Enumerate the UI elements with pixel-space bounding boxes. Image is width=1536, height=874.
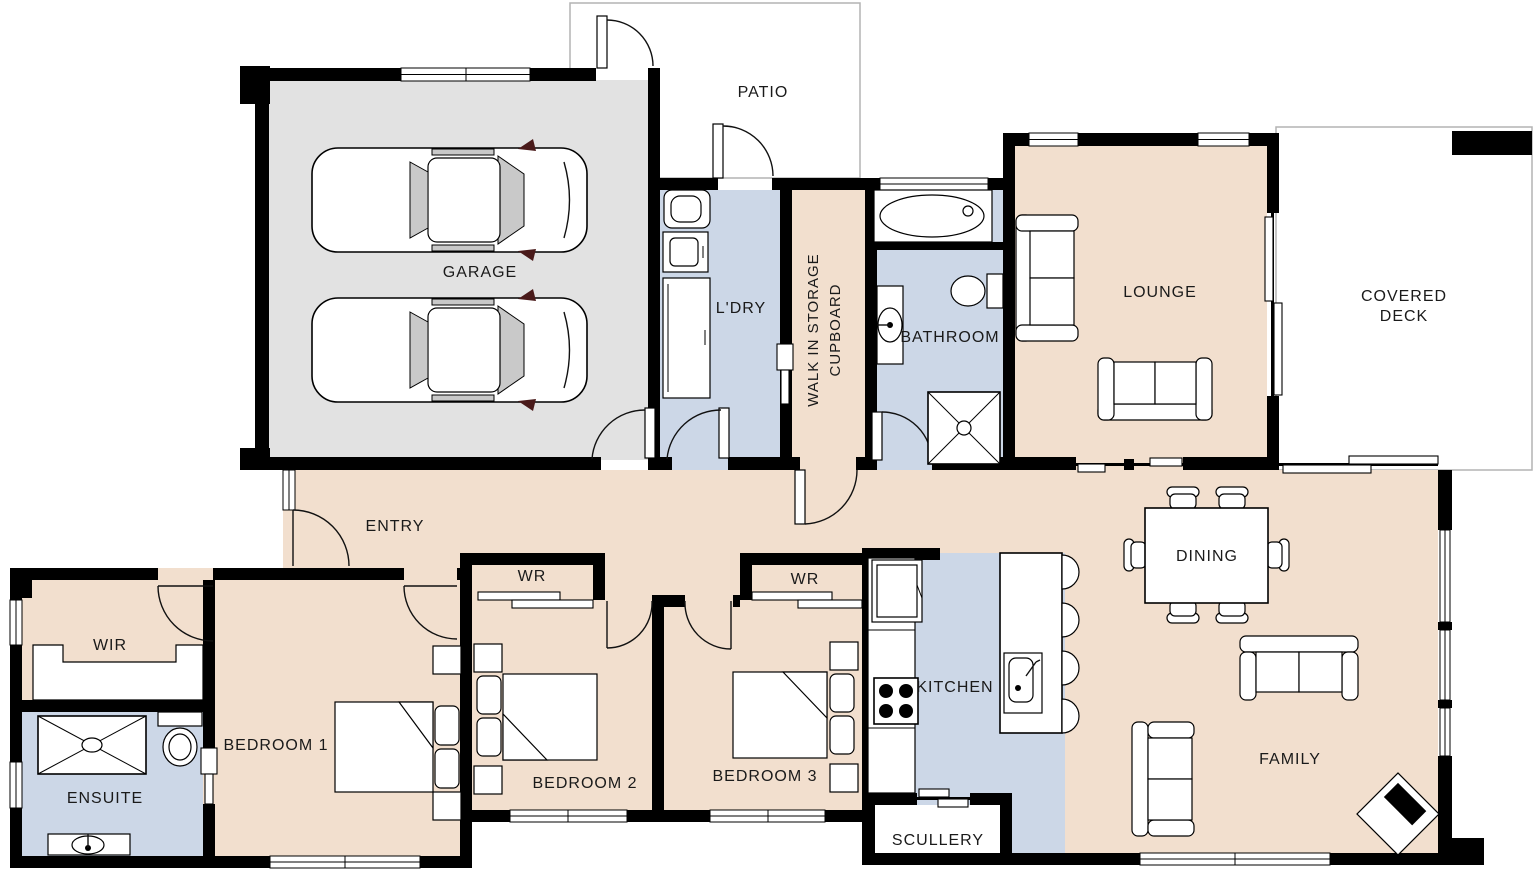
scullery-label: SCULLERY — [892, 832, 984, 849]
sofa-icon — [1132, 722, 1194, 836]
bedroom3-label: BEDROOM 3 — [712, 768, 817, 785]
bedroom1-label: BEDROOM 1 — [223, 737, 328, 754]
wir-label: WIR — [93, 637, 127, 654]
storage-cupboard-label-line1: WALK IN STORAGE — [805, 253, 822, 406]
nightstand-icon — [474, 766, 502, 794]
wr3-slider — [752, 592, 832, 600]
nightstand-icon — [830, 764, 858, 792]
ensuite-label: ENSUITE — [67, 790, 143, 807]
cooktop-icon — [874, 678, 918, 724]
floor-plan: GARAGE PATIO L'DRY WALK IN STORAGE CUPBO… — [0, 0, 1536, 874]
lounge-label: LOUNGE — [1123, 284, 1197, 301]
nightstand-icon — [474, 644, 502, 672]
laundry-appliances — [663, 190, 710, 398]
car-icon — [312, 139, 587, 261]
laundry-cabinet-icon — [663, 278, 710, 398]
sofa-icon — [1240, 636, 1358, 700]
exterior-notch-left — [0, 470, 283, 568]
dining-label: DINING — [1176, 548, 1238, 565]
nightstand-icon — [433, 646, 461, 674]
storage-cupboard-label-line2: CUPBOARD — [827, 283, 844, 376]
garage-label: GARAGE — [443, 264, 517, 281]
family-label: FAMILY — [1259, 751, 1321, 768]
sofa-icon — [1016, 215, 1078, 341]
wr2-label: WR — [518, 568, 547, 585]
floor-plan-canvas: GARAGE PATIO L'DRY WALK IN STORAGE CUPBO… — [0, 0, 1536, 874]
wr3-label: WR — [791, 571, 820, 588]
sofa-icon — [1098, 358, 1212, 420]
covered-deck-label-line2: DECK — [1380, 308, 1428, 325]
entry-label: ENTRY — [366, 518, 425, 535]
exterior-notch-bottom — [472, 822, 862, 874]
car-icon — [312, 289, 587, 411]
bathroom-label: BATHROOM — [900, 329, 999, 346]
nightstand-icon — [830, 642, 858, 670]
toilet-icon — [987, 274, 1003, 308]
cupboard-pocket-door — [777, 344, 793, 370]
nightstand-icon — [433, 792, 461, 820]
kitchen-label: KITCHEN — [916, 679, 993, 696]
wr2-slider — [478, 592, 560, 600]
covered-deck-label-line1: COVERED — [1361, 288, 1447, 305]
laundry-label: L'DRY — [716, 300, 766, 317]
patio-label: PATIO — [738, 84, 789, 101]
bedroom2-label: BEDROOM 2 — [532, 775, 637, 792]
toilet-icon — [158, 712, 202, 726]
ensuite-pocket-door — [201, 748, 217, 774]
deck-wall-segment — [1452, 131, 1532, 155]
